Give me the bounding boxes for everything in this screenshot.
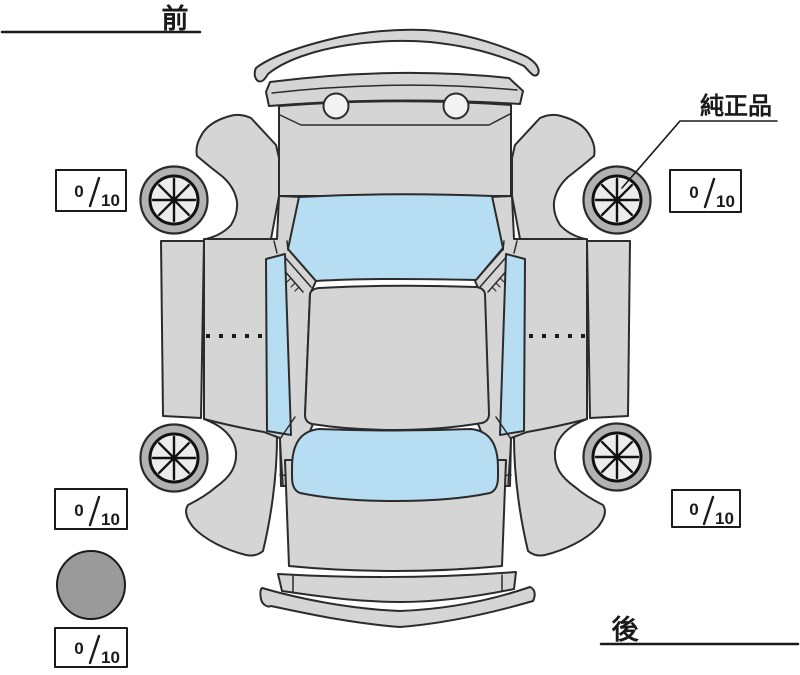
svg-text:10: 10	[101, 191, 120, 210]
svg-text:0: 0	[74, 501, 83, 520]
svg-text:10: 10	[101, 510, 120, 529]
svg-text:純正品: 純正品	[700, 92, 772, 120]
svg-text:0: 0	[74, 182, 83, 201]
svg-text:10: 10	[715, 509, 734, 528]
svg-text:10: 10	[716, 192, 735, 211]
svg-text:0: 0	[689, 500, 698, 519]
svg-text:後: 後	[612, 615, 640, 645]
svg-text:0: 0	[689, 183, 698, 202]
svg-text:前: 前	[162, 3, 189, 34]
svg-text:10: 10	[101, 648, 120, 667]
svg-text:0: 0	[74, 639, 83, 658]
